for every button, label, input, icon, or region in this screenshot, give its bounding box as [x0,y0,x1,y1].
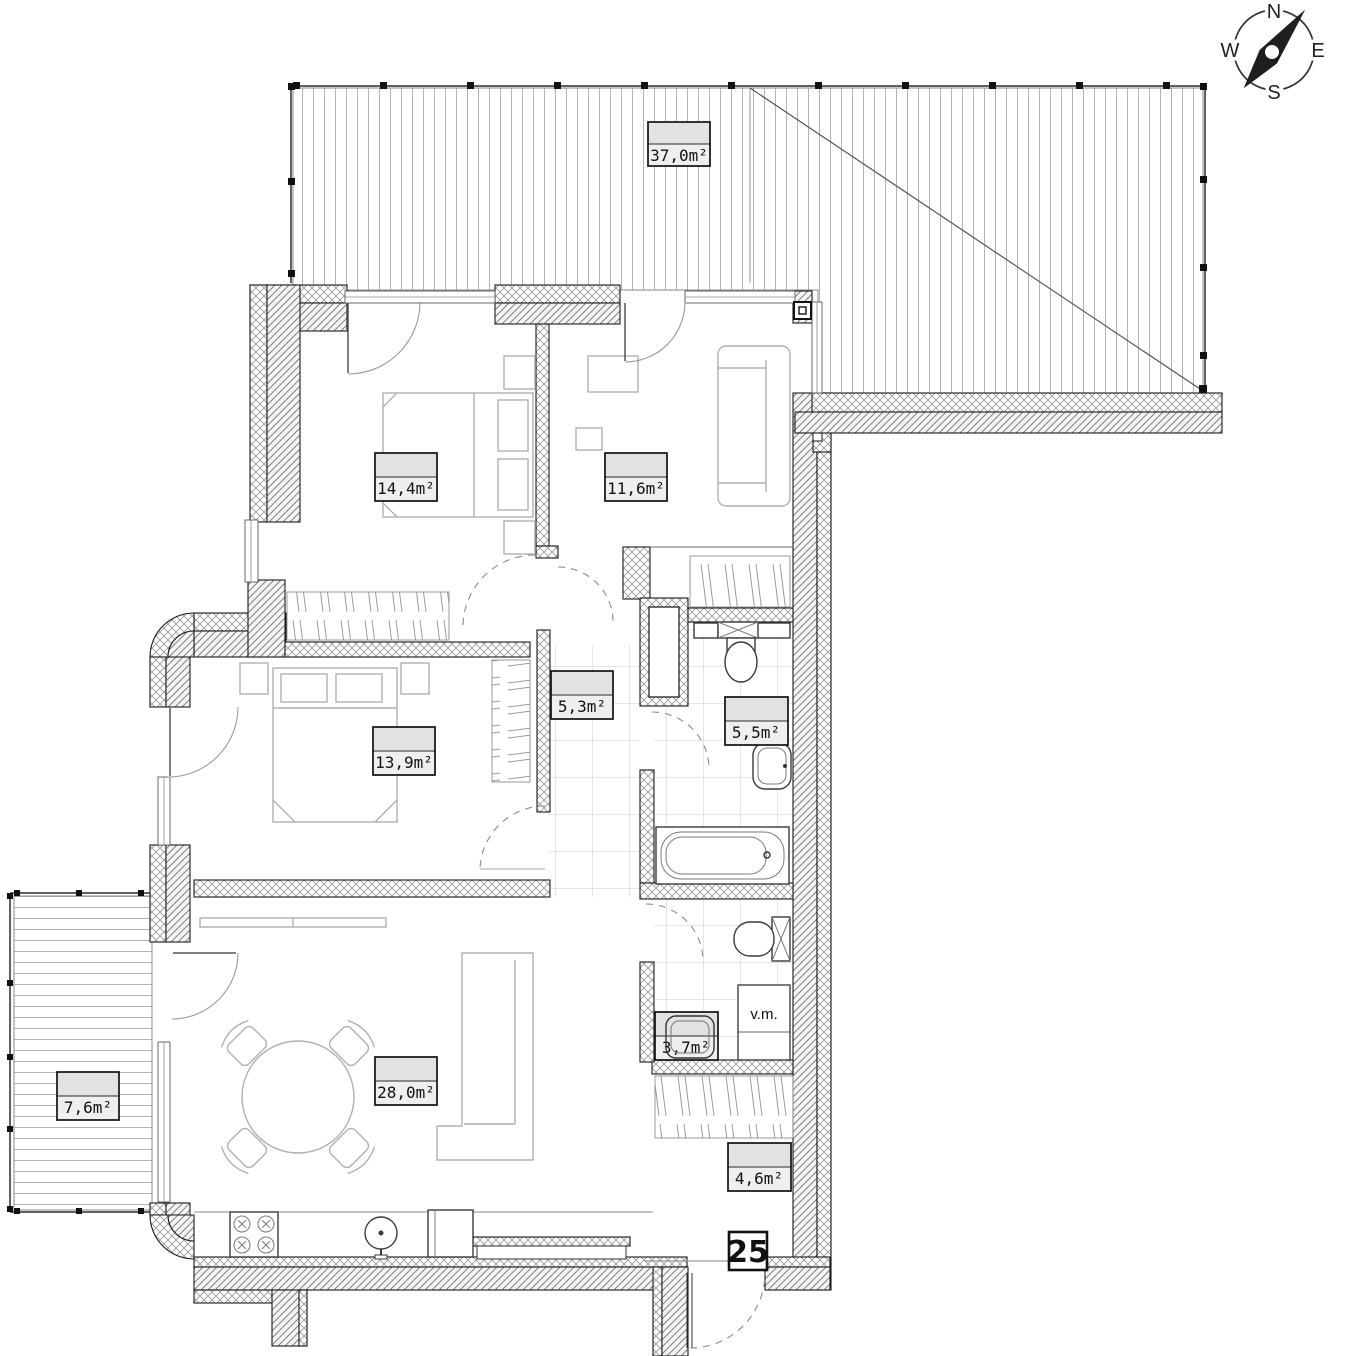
toilet-icon [734,917,790,961]
window [158,1042,170,1202]
balcony-door [172,953,238,1019]
door-swing [558,567,613,622]
nightstand-icon [401,663,429,694]
svg-text:3,7m²: 3,7m² [662,1038,710,1057]
room-label-entrance-hall: 4,6m² [728,1143,791,1191]
washbasin-icon [753,743,791,789]
room-label-bathroom: 5,5m² [725,697,788,745]
room-label-hall: 5,3m² [551,671,613,719]
wardrobe-icon [287,592,449,640]
door-swing [480,806,545,871]
corner-sofa-icon [437,953,533,1160]
apartment-number-badge: 25 [727,1232,769,1270]
window [685,291,795,303]
shelf-icon [694,623,718,638]
washing-machine-area: v.m. [738,985,790,1060]
window [345,291,495,303]
sink-icon [365,1217,397,1259]
closet-icon [655,1076,793,1138]
terrace-door [625,302,685,362]
svg-text:7,6m²: 7,6m² [64,1098,112,1117]
closet-icon [690,556,790,607]
room-label-bedroom-2: 11,6m² [605,453,667,501]
bathtub-icon [656,827,789,884]
room-label-bedroom-1: 14,4m² [375,453,437,501]
svg-text:5,3m²: 5,3m² [558,697,606,716]
terrace-door [348,302,420,374]
svg-text:37,0m²: 37,0m² [650,146,708,165]
window [245,520,258,582]
svg-text:14,4m²: 14,4m² [377,479,435,498]
svg-text:13,9m²: 13,9m² [375,753,433,772]
nightstand-icon [504,521,535,554]
fridge-icon [428,1210,473,1257]
balcony [7,890,152,1214]
room-label-balcony: 7,6m² [57,1072,119,1120]
compass: N E S W [1221,1,1325,104]
room-label-bedroom-3: 13,9m² [373,727,435,775]
balcony-deck [14,896,152,1210]
shelf-icon [756,623,790,638]
svg-text:4,6m²: 4,6m² [735,1169,783,1188]
wardrobe-icon [492,660,530,782]
svg-text:11,6m²: 11,6m² [607,479,665,498]
washing-machine-label: v.m. [750,1006,777,1023]
chair-icon [576,428,602,450]
floor-plan-drawing: v.m. 37,0m² 14,4m² [0,0,1362,1356]
room-label-living-room: 28,0m² [375,1057,437,1105]
floor-plan-page: v.m. 37,0m² 14,4m² [0,0,1362,1356]
sofa-icon [718,346,790,506]
nightstand-icon [504,356,535,389]
compass-north-label: N [1267,1,1281,23]
svg-text:28,0m²: 28,0m² [377,1083,435,1102]
door-swing [463,555,535,627]
compass-south-label: S [1267,82,1280,104]
kitchen-window-niche [473,1237,630,1259]
room-label-terrace: 37,0m² [648,122,710,166]
nightstand-icon [240,663,268,694]
svg-text:5,5m²: 5,5m² [732,723,780,742]
dining-table-icon [242,1041,354,1153]
svg-text:25: 25 [727,1235,769,1270]
window [812,302,822,393]
stove-icon [230,1212,278,1257]
window [158,777,170,845]
compass-west-label: W [1221,40,1240,62]
balcony-door [168,707,238,777]
compass-east-label: E [1311,40,1324,62]
